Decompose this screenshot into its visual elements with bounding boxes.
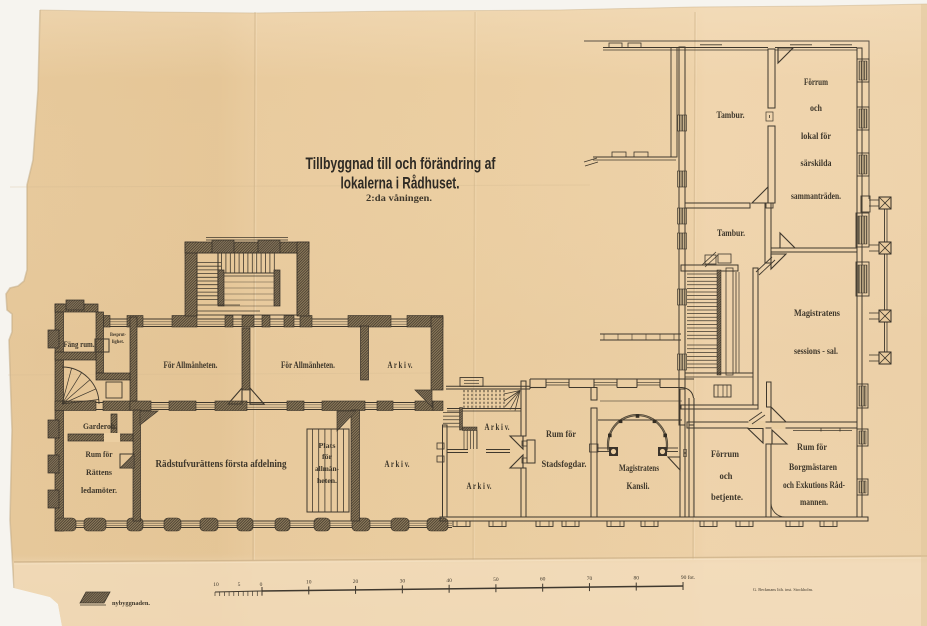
svg-text:Fäng rum.: Fäng rum. — [64, 339, 95, 349]
svg-text:särskilda: särskilda — [801, 158, 832, 168]
svg-text:För Allmänheten.: För Allmänheten. — [281, 360, 335, 370]
svg-text:10: 10 — [213, 582, 219, 588]
svg-text:Rättens: Rättens — [86, 467, 113, 477]
svg-text:10: 10 — [306, 579, 312, 585]
svg-text:Tambur.: Tambur. — [717, 228, 745, 238]
svg-text:A r k i v.: A r k i v. — [485, 422, 510, 432]
svg-text:Plats: Plats — [319, 442, 336, 450]
svg-text:lokalerna i Rådhuset.: lokalerna i Rådhuset. — [341, 175, 460, 193]
svg-text:för: för — [322, 453, 332, 461]
svg-text:nybyggnaden.: nybyggnaden. — [112, 601, 151, 607]
svg-text:lokal för: lokal för — [801, 131, 831, 141]
svg-text:och: och — [720, 471, 733, 481]
svg-text:ledamöter.: ledamöter. — [81, 485, 117, 495]
svg-text:50: 50 — [493, 577, 499, 583]
svg-text:A r k i v.: A r k i v. — [388, 360, 413, 370]
svg-text:2:da våningen.: 2:da våningen. — [366, 193, 432, 203]
svg-text:90 fot.: 90 fot. — [681, 574, 696, 581]
svg-text:betjente.: betjente. — [711, 492, 743, 502]
svg-text:A r k i v.: A r k i v. — [385, 459, 410, 469]
svg-text:allmän-: allmän- — [315, 465, 340, 473]
svg-text:lighet.: lighet. — [112, 340, 125, 345]
svg-text:Rum för: Rum för — [797, 442, 827, 452]
svg-text:Stadsfogdar.: Stadsfogdar. — [542, 459, 587, 469]
svg-text:70: 70 — [587, 576, 593, 582]
svg-text:Tambur.: Tambur. — [717, 110, 745, 120]
svg-text:Förrum: Förrum — [711, 449, 739, 459]
svg-text:60: 60 — [540, 577, 546, 583]
svg-text:20: 20 — [353, 579, 359, 585]
svg-text:G. Beckmans lith. inst. Stockh: G. Beckmans lith. inst. Stockholm. — [753, 587, 813, 592]
svg-text:A r k i v.: A r k i v. — [467, 481, 492, 491]
svg-text:Rum för: Rum för — [546, 429, 576, 439]
svg-text:Rum för: Rum för — [86, 449, 113, 459]
svg-text:heten.: heten. — [317, 477, 337, 485]
svg-text:För Allmänheten.: För Allmänheten. — [164, 360, 218, 370]
svg-text:sessions - sal.: sessions - sal. — [794, 346, 838, 356]
svg-text:5: 5 — [238, 582, 241, 588]
svg-text:Rädstufvurättens första afdeln: Rädstufvurättens första afdelning — [156, 459, 287, 470]
svg-text:Garderob.: Garderob. — [83, 421, 117, 431]
svg-text:mannen.: mannen. — [800, 497, 828, 507]
svg-text:sammanträden.: sammanträden. — [791, 191, 841, 201]
svg-text:Tillbyggnad till och förändrin: Tillbyggnad till och förändring af — [306, 155, 496, 173]
svg-text:och: och — [810, 103, 822, 113]
svg-text:Magistratens: Magistratens — [794, 308, 840, 318]
svg-text:Borgmästaren: Borgmästaren — [789, 462, 837, 472]
svg-text:40: 40 — [446, 578, 452, 584]
svg-text:och Exkutions Råd-: och Exkutions Råd- — [783, 480, 845, 490]
svg-text:30: 30 — [400, 578, 406, 584]
svg-text:0: 0 — [260, 582, 263, 588]
svg-text:Kansli.: Kansli. — [627, 481, 650, 491]
svg-text:Besprut-: Besprut- — [110, 333, 126, 338]
svg-text:Förrum: Förrum — [804, 77, 828, 87]
svg-text:Magistratens: Magistratens — [619, 463, 659, 473]
svg-text:80: 80 — [633, 576, 639, 582]
